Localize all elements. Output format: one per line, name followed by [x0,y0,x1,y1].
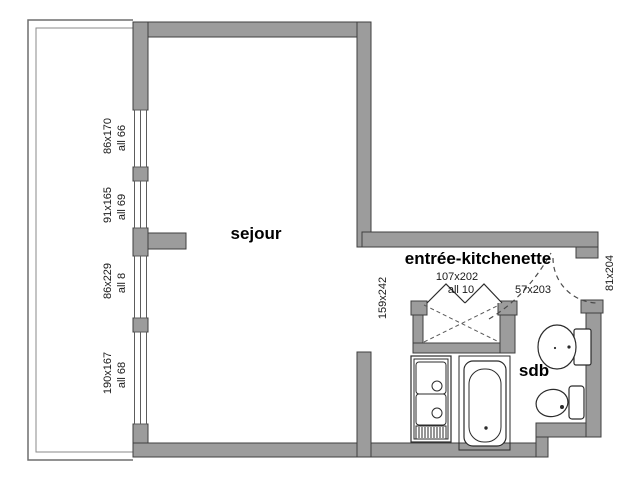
entry-door-swing-arc [553,258,598,303]
toilet [534,386,584,420]
window-4 [134,332,147,424]
closet-door-dim-label: 107x202 [436,271,478,283]
window-3-sill-label: all 8 [116,273,128,293]
window-3-dim-label: 86x229 [102,263,114,299]
floor-plan: sejour entrée-kitchenette sdb 86x170 all… [0,0,640,480]
window-4-dim-label: 190x167 [102,352,114,394]
passage-dim-label: 159x242 [377,277,389,319]
room-label-entree-kitchenette: entrée-kitchenette [405,249,551,269]
window-1 [134,110,147,167]
closet-cross [424,305,499,342]
window-3 [134,256,147,318]
kitchen-sink [411,356,451,442]
window-2-dim-label: 91x165 [102,187,114,223]
window-2-sill-label: all 69 [116,194,128,220]
bathtub [459,356,510,450]
window-2 [134,181,147,228]
terrace-outline [28,20,133,460]
bathroom-door-dim-label: 57x203 [515,284,551,296]
window-1-dim-label: 86x170 [102,118,114,154]
window-1-sill-label: all 66 [116,125,128,151]
window-4-sill-label: all 68 [116,362,128,388]
closet-door-sill-label: all 10 [448,284,474,296]
room-label-sdb: sdb [519,361,549,381]
walls [133,22,603,457]
entry-door-dim-label: 81x204 [604,255,616,291]
floor-plan-drawing [0,0,640,480]
room-label-sejour: sejour [230,224,281,244]
